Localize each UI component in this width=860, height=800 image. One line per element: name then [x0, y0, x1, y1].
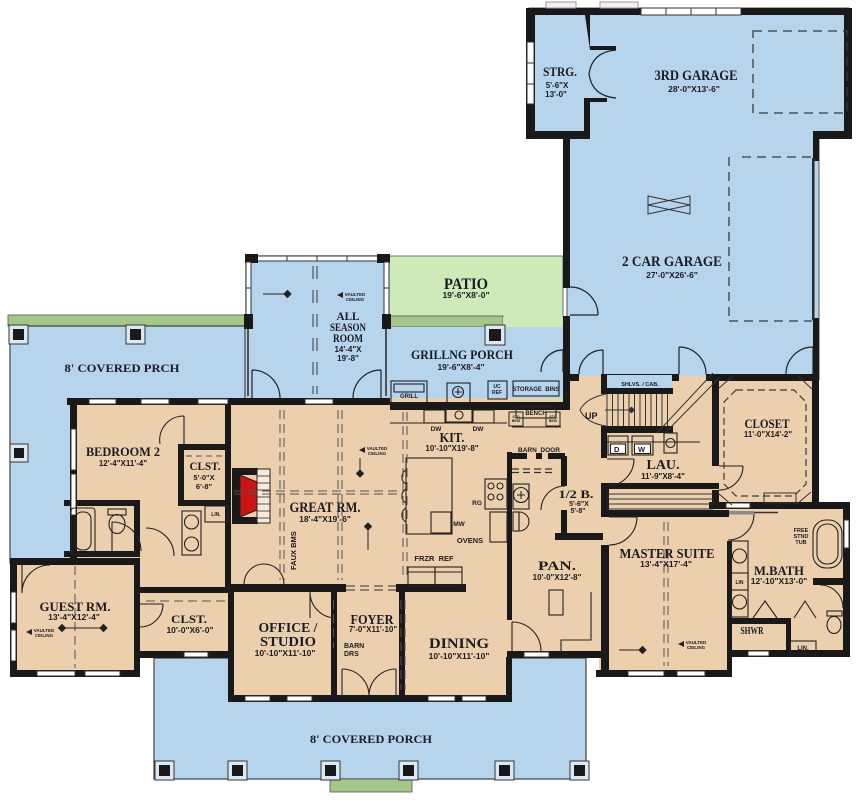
svg-text:14'-4"X: 14'-4"X: [334, 345, 362, 354]
svg-text:GRILL: GRILL: [400, 394, 418, 400]
svg-text:28'-0"X13'-6": 28'-0"X13'-6": [668, 84, 720, 94]
svg-text:CLST.: CLST.: [171, 612, 207, 626]
svg-text:10'-0"X12'-8": 10'-0"X12'-8": [533, 573, 582, 582]
svg-text:BINS: BINS: [549, 419, 558, 423]
svg-text:5'-8": 5'-8": [570, 508, 585, 515]
svg-text:W: W: [638, 445, 646, 454]
svg-text:1/2 B.: 1/2 B.: [559, 487, 594, 501]
svg-text:5'-0"X: 5'-0"X: [193, 473, 214, 482]
svg-text:STRG.: STRG.: [543, 64, 577, 79]
svg-text:DRS: DRS: [344, 651, 359, 658]
svg-text:2 CAR GARAGE: 2 CAR GARAGE: [622, 254, 722, 270]
svg-text:ROOM: ROOM: [333, 331, 363, 345]
svg-text:BEDROOM 2: BEDROOM 2: [86, 444, 160, 459]
svg-text:13'-4"X17'-4": 13'-4"X17'-4": [640, 559, 692, 569]
svg-text:SHWR: SHWR: [741, 626, 765, 637]
svg-text:LIN.: LIN.: [797, 646, 809, 652]
svg-text:MW: MW: [453, 521, 465, 528]
svg-text:10'-0"X6'-0": 10'-0"X6'-0": [166, 625, 213, 635]
svg-text:SHLVS. / CAB.: SHLVS. / CAB.: [621, 382, 659, 388]
svg-text:CEILING: CEILING: [35, 633, 54, 638]
svg-text:TUB: TUB: [795, 540, 806, 546]
svg-text:LIN: LIN: [735, 580, 743, 586]
svg-text:UP: UP: [585, 411, 598, 421]
svg-text:12'-10"X13'-0": 12'-10"X13'-0": [751, 576, 808, 586]
svg-text:CLOSET: CLOSET: [745, 416, 790, 431]
svg-text:STUDIO: STUDIO: [260, 634, 316, 649]
svg-text:19'-6"X8'-4": 19'-6"X8'-4": [437, 362, 484, 372]
svg-text:27'-0"X26'-6": 27'-0"X26'-6": [646, 270, 698, 280]
svg-text:13'-0": 13'-0": [545, 90, 567, 99]
svg-text:10'-10"X11'-10": 10'-10"X11'-10": [429, 651, 490, 661]
svg-text:CEILING: CEILING: [346, 297, 365, 302]
svg-text:RG: RG: [472, 500, 482, 507]
svg-text:BINS: BINS: [512, 419, 521, 423]
svg-text:8' COVERED PRCH: 8' COVERED PRCH: [65, 361, 181, 375]
svg-text:CLST.: CLST.: [190, 461, 221, 473]
svg-text:OVENS: OVENS: [457, 536, 483, 545]
svg-text:10'-10"X19'-8": 10'-10"X19'-8": [425, 444, 478, 453]
svg-text:FAUX BMS: FAUX BMS: [289, 531, 298, 570]
svg-text:REF: REF: [492, 390, 502, 396]
svg-text:DW: DW: [431, 426, 443, 433]
svg-text:6'-8": 6'-8": [196, 482, 213, 491]
svg-text:18'-4"X19'-6": 18'-4"X19'-6": [299, 514, 351, 524]
svg-text:19'-6"X8'-0": 19'-6"X8'-0": [442, 290, 489, 300]
svg-text:3RD GARAGE: 3RD GARAGE: [655, 68, 738, 84]
svg-text:11'-9"X8'-4": 11'-9"X8'-4": [641, 472, 685, 481]
svg-text:5'-6"X: 5'-6"X: [546, 81, 569, 90]
svg-text:13'-4"X12'-4": 13'-4"X12'-4": [48, 612, 100, 622]
svg-text:CEILING: CEILING: [368, 451, 387, 456]
svg-text:FRZR REF: FRZR REF: [414, 554, 454, 563]
svg-text:OFFICE /: OFFICE /: [259, 620, 318, 635]
svg-text:BARN: BARN: [344, 643, 364, 650]
svg-text:19'-8": 19'-8": [337, 354, 359, 363]
svg-text:LIN.: LIN.: [211, 512, 221, 518]
svg-text:GRILLNG PORCH: GRILLNG PORCH: [411, 347, 513, 362]
svg-text:7'-0"X11'-10": 7'-0"X11'-10": [349, 625, 398, 634]
svg-text:DW: DW: [473, 426, 485, 433]
svg-text:10'-10"X11'-10": 10'-10"X11'-10": [255, 648, 316, 658]
svg-text:8' COVERED PORCH: 8' COVERED PORCH: [310, 732, 433, 746]
svg-text:BARN DOOR: BARN DOOR: [518, 447, 560, 454]
svg-text:STORAGE BINS: STORAGE BINS: [512, 387, 559, 393]
svg-text:11'-0"X14'-2": 11'-0"X14'-2": [744, 430, 793, 439]
svg-text:BENCH: BENCH: [525, 411, 546, 417]
svg-text:PAN.: PAN.: [538, 558, 576, 573]
svg-text:CEILING: CEILING: [687, 645, 706, 650]
svg-text:12'-4"X11'-4": 12'-4"X11'-4": [99, 459, 148, 468]
svg-text:D: D: [614, 445, 620, 454]
svg-text:5'-6"X: 5'-6"X: [569, 501, 589, 508]
svg-text:LAU.: LAU.: [647, 458, 680, 473]
svg-text:DINING: DINING: [429, 636, 489, 652]
